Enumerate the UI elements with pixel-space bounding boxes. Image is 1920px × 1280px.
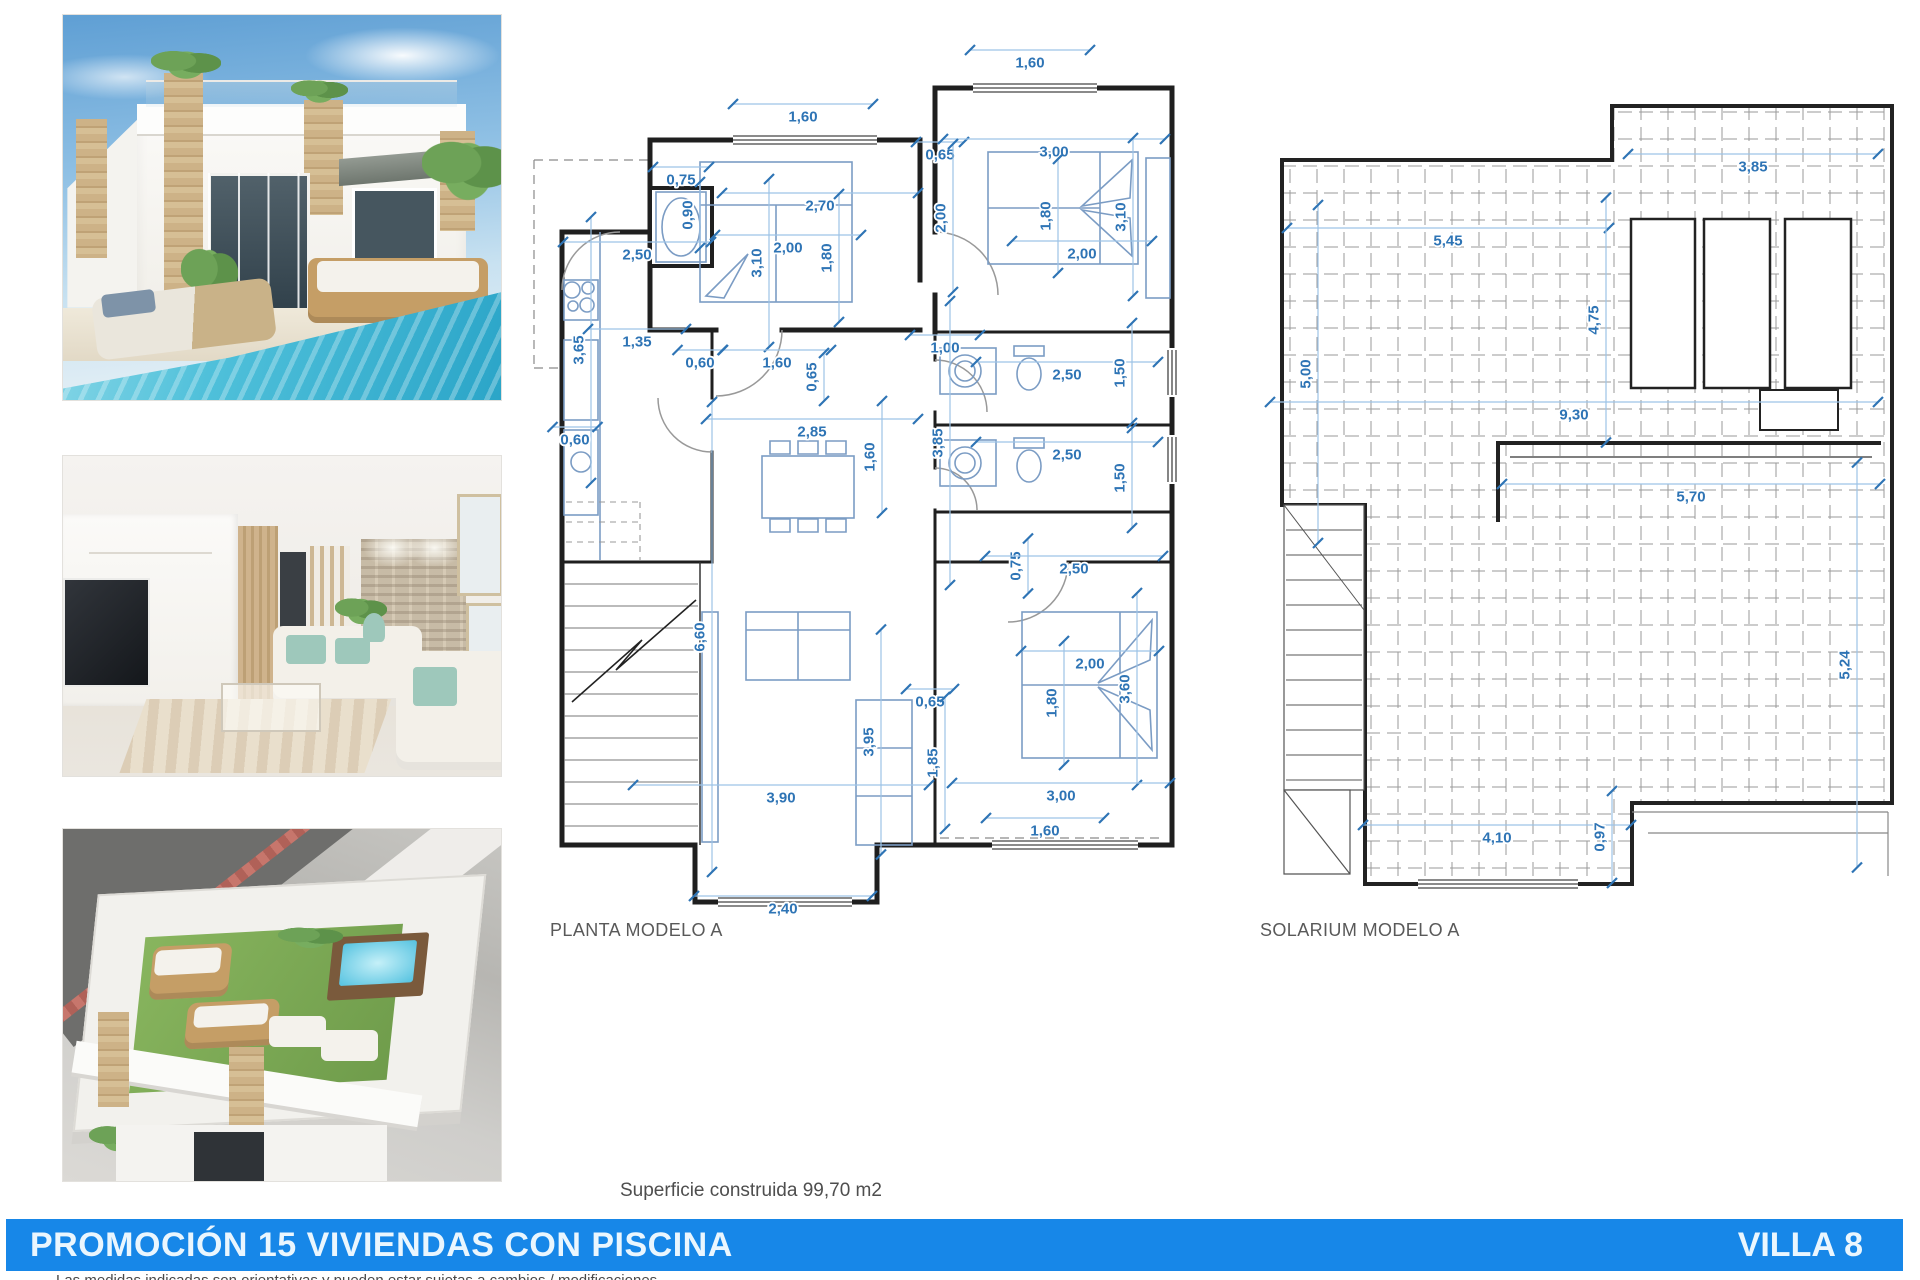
dim-value: 1,60	[1015, 55, 1044, 72]
dim-value: 5,70	[1676, 489, 1705, 506]
planta-dimensions: 1,601,600,750,902,702,003,101,800,653,00…	[548, 45, 1176, 918]
dim-value: 1,35	[622, 334, 651, 351]
jacuzzi-water	[339, 940, 418, 986]
dimension: 2,00	[1007, 236, 1157, 263]
photo-rooftop-aerial	[62, 828, 502, 1182]
planta-label: PLANTA MODELO A	[550, 920, 723, 941]
teal-cushion	[335, 638, 370, 664]
palm-tree	[422, 123, 502, 212]
promo-title: PROMOCIÓN 15 VIVIENDAS CON PISCINA	[6, 1226, 733, 1265]
dimension: 1,50	[1112, 318, 1138, 428]
dimension: 1,80	[1044, 636, 1070, 770]
shelf	[89, 552, 212, 554]
dim-value: 1,60	[788, 109, 817, 126]
dim-value: 5,00	[1298, 359, 1315, 388]
dimension: 3,10	[749, 174, 775, 352]
dim-value: 6,60	[692, 622, 709, 651]
chimney	[1760, 390, 1838, 430]
neighbor-roof-outline	[1632, 812, 1888, 876]
dim-value: 4,75	[1586, 305, 1603, 334]
dim-value: 3,65	[571, 335, 588, 364]
villa-number: VILLA 8	[1738, 1226, 1903, 1265]
dimension: 5,70	[1497, 479, 1885, 506]
dim-value: 1,60	[1030, 823, 1059, 840]
dimension: 1,60	[981, 813, 1109, 840]
dim-value: 5,45	[1433, 233, 1462, 250]
wood-slat-panel	[238, 526, 277, 705]
dim-value: 5,24	[1837, 650, 1854, 680]
dim-value: 3,95	[861, 727, 878, 756]
dim-value: 1,00	[930, 340, 959, 357]
dim-value: 2,50	[1059, 561, 1088, 578]
photo-villa-pool	[62, 14, 502, 401]
dim-value: 9,30	[1559, 407, 1588, 424]
stone-pillar	[98, 1012, 129, 1107]
dim-value: 2,00	[933, 203, 950, 232]
dimension: 1,60	[862, 396, 888, 518]
dim-value: 3,10	[749, 248, 766, 277]
dimension: 2,70	[717, 188, 923, 215]
dimension: 2,50	[971, 357, 1163, 384]
dimension: 5,45	[1282, 223, 1614, 250]
dimension: 1,80	[1038, 154, 1064, 278]
dim-value: 0,60	[685, 355, 714, 372]
built-area-note: Superficie construida 99,70 m2	[620, 1180, 882, 1202]
dim-value: 0,65	[925, 147, 954, 164]
dimension: 0,97	[1592, 786, 1618, 888]
skylights	[1631, 219, 1851, 388]
dim-value: 1,60	[862, 442, 879, 471]
television	[63, 578, 150, 688]
brochure-page: 1,601,600,750,902,702,003,101,800,653,00…	[0, 0, 1920, 1280]
dim-value: 1,50	[1112, 463, 1129, 492]
dim-value: 2,85	[797, 424, 826, 441]
planter	[278, 921, 344, 953]
dimension: 2,85	[701, 414, 923, 441]
dimension: 2,00	[1016, 646, 1164, 673]
dim-value: 1,80	[819, 243, 836, 272]
dim-value: 4,10	[1482, 830, 1511, 847]
dim-value: 2,00	[1067, 246, 1096, 263]
dim-value: 3,90	[766, 790, 795, 807]
stair-treads	[564, 584, 698, 826]
dimension: 5,24	[1837, 458, 1863, 873]
dim-value: 0,75	[666, 172, 695, 189]
dimension: 3,00	[938, 134, 1170, 161]
stair-break-line	[572, 600, 696, 702]
roof-plant	[151, 42, 221, 84]
dim-value: 3,00	[1039, 144, 1068, 161]
dimension: 3,10	[1113, 133, 1139, 301]
dim-value: 1,85	[925, 748, 942, 777]
dim-value: 3,10	[1113, 202, 1130, 231]
dim-value: 1,80	[1044, 688, 1061, 717]
wall-art	[457, 494, 502, 596]
dim-value: 2,50	[1052, 447, 1081, 464]
dim-value: 3,00	[1046, 788, 1075, 805]
sofa-cushions	[317, 261, 479, 292]
sofa-cushions	[193, 1003, 270, 1028]
roof-plant	[291, 73, 348, 108]
dim-value: 2,00	[1075, 656, 1104, 673]
dimension: 1,50	[1112, 423, 1138, 533]
dimension: 0,60	[673, 345, 728, 372]
dimension: 3,90	[628, 780, 934, 807]
stairs-dashed-upper	[566, 502, 640, 560]
dim-value: 1,80	[1038, 201, 1055, 230]
dimension: 1,85	[925, 692, 951, 834]
lounger	[321, 1030, 378, 1062]
table-lamp	[363, 613, 385, 642]
disclaimer-text: Las medidas indicadas son orientativas y…	[56, 1272, 657, 1280]
stone-pillar	[76, 119, 107, 258]
coffee-table	[221, 683, 321, 732]
interior-parapet	[1498, 443, 1881, 522]
dim-value: 0,90	[680, 200, 697, 229]
dimension: 2,00	[710, 230, 866, 257]
dim-value: 0,65	[804, 362, 821, 391]
lounger	[269, 1016, 326, 1048]
dim-value: 2,70	[805, 198, 834, 215]
dimension: 2,50	[971, 437, 1163, 464]
dim-value: 1,60	[762, 355, 791, 372]
dimension: 1,60	[728, 99, 878, 126]
dim-value: 1,50	[1112, 358, 1129, 387]
dimension: 0,65	[901, 684, 959, 711]
dim-value: 2,50	[622, 247, 651, 264]
solarium-label: SOLARIUM MODELO A	[1260, 920, 1460, 941]
dimension: 3,85	[1623, 149, 1883, 176]
dimension: 3,95	[861, 625, 887, 860]
dimension: 0,75	[1008, 534, 1034, 599]
dim-value: 3,85	[1738, 159, 1767, 176]
dimension: 1,00	[905, 330, 985, 357]
dim-value: 2,40	[768, 901, 797, 918]
dim-value: 0,60	[560, 432, 589, 449]
stair-landing	[1284, 790, 1350, 874]
dimension: 0,75	[648, 162, 714, 189]
dim-value: 3,85	[930, 428, 947, 457]
teal-cushion	[413, 667, 457, 705]
solarium-stairs	[1284, 505, 1364, 790]
dimension: 5,00	[1298, 200, 1324, 548]
dimension: 1,60	[965, 45, 1095, 72]
dim-value: 2,00	[773, 240, 802, 257]
sofa-cushions	[154, 947, 222, 975]
interior-walls	[562, 330, 1172, 845]
roof-plan-solarium: 3,855,455,004,759,305,705,244,100,97	[1255, 80, 1905, 895]
dimension: 0,60	[548, 422, 603, 449]
dimension: 0,65	[804, 348, 830, 406]
promo-banner: PROMOCIÓN 15 VIVIENDAS CON PISCINA VILLA…	[6, 1219, 1903, 1271]
dim-value: 0,97	[1592, 822, 1609, 851]
floor-plan-planta: 1,601,600,750,902,702,003,101,800,653,00…	[528, 28, 1200, 928]
teal-cushion	[286, 635, 325, 664]
photo-living-room	[62, 455, 502, 777]
lower-window	[194, 1132, 264, 1181]
dim-value: 3,60	[1117, 674, 1134, 703]
dim-value: 2,50	[1052, 367, 1081, 384]
